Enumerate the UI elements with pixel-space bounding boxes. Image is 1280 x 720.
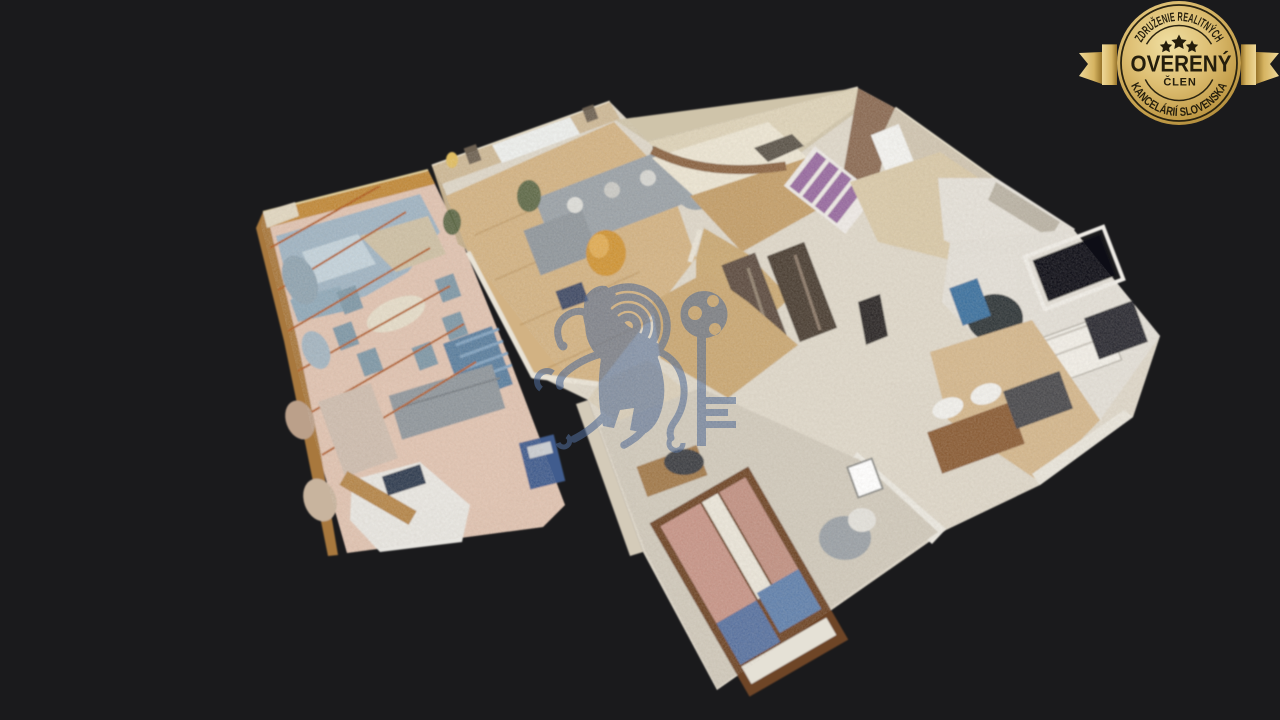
svg-text:OVERENÝ: OVERENÝ xyxy=(1131,50,1232,77)
svg-text:ČLEN: ČLEN xyxy=(1163,76,1196,89)
